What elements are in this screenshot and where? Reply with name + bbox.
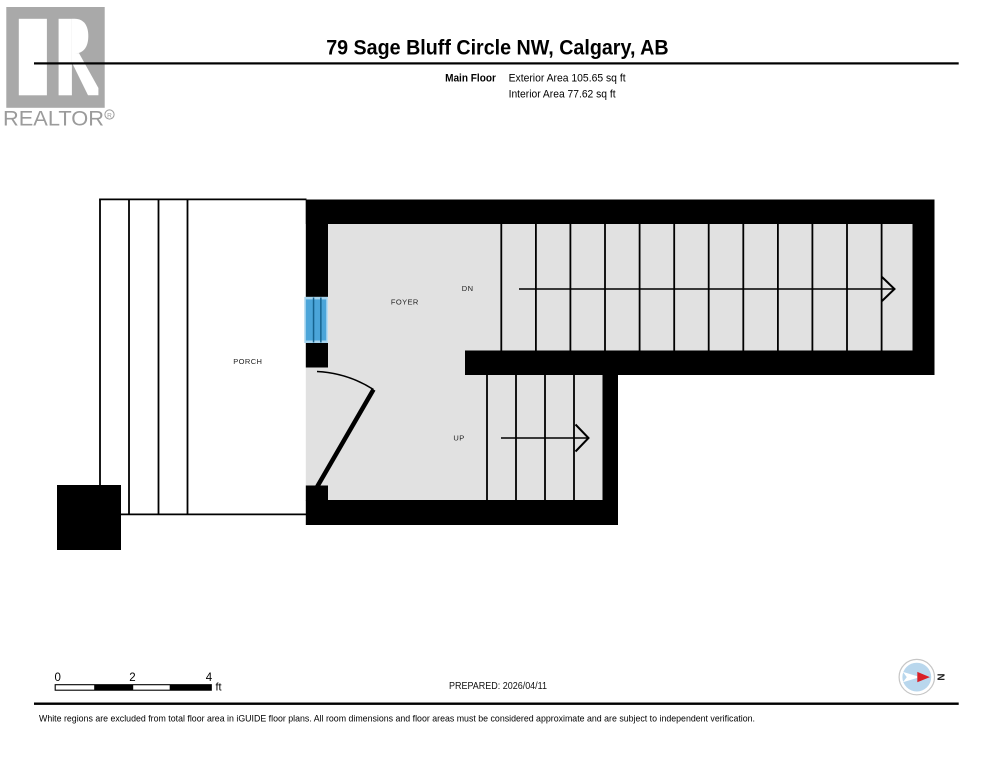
svg-text:White regions are excluded fro: White regions are excluded from total fl… xyxy=(39,714,755,724)
svg-text:2: 2 xyxy=(129,672,135,684)
svg-text:4: 4 xyxy=(206,672,213,684)
svg-text:ft: ft xyxy=(216,682,222,694)
svg-text:PORCH: PORCH xyxy=(233,357,262,366)
svg-text:Interior Area 77.62 sq ft: Interior Area 77.62 sq ft xyxy=(509,88,616,100)
svg-text:0: 0 xyxy=(54,672,60,684)
svg-text:PREPARED: 2026/04/11: PREPARED: 2026/04/11 xyxy=(449,681,547,692)
svg-text:Main Floor: Main Floor xyxy=(445,72,496,84)
svg-text:N: N xyxy=(935,673,946,680)
svg-text:REALTOR: REALTOR xyxy=(3,107,104,131)
svg-text:UP: UP xyxy=(453,433,464,442)
svg-text:R: R xyxy=(107,113,112,120)
svg-text:79 Sage Bluff Circle NW, Calga: 79 Sage Bluff Circle NW, Calgary, AB xyxy=(326,37,668,60)
svg-text:FOYER: FOYER xyxy=(391,298,419,307)
svg-text:DN: DN xyxy=(462,284,474,293)
svg-text:Exterior Area 105.65 sq ft: Exterior Area 105.65 sq ft xyxy=(509,72,626,84)
